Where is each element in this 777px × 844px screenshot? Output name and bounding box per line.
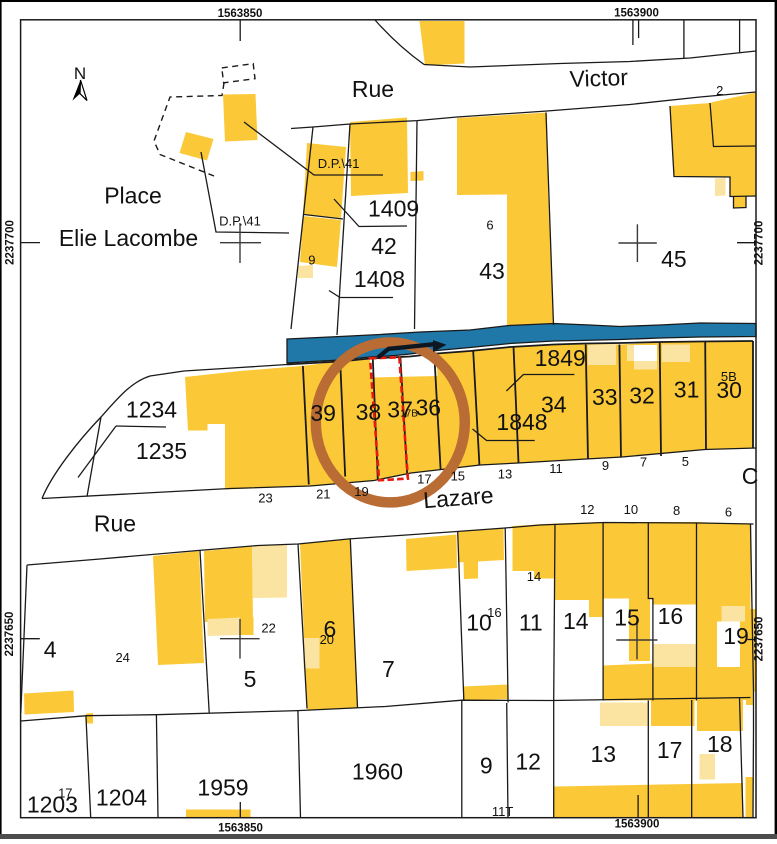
- svg-text:9: 9: [602, 458, 609, 473]
- svg-text:Place: Place: [104, 183, 162, 209]
- svg-text:1234: 1234: [126, 397, 177, 423]
- svg-text:11: 11: [519, 610, 543, 636]
- svg-text:2: 2: [716, 83, 723, 98]
- svg-text:16: 16: [487, 605, 501, 620]
- svg-text:9: 9: [480, 753, 493, 779]
- svg-text:36: 36: [416, 395, 442, 421]
- svg-text:45: 45: [661, 246, 687, 272]
- svg-text:7: 7: [382, 656, 395, 682]
- svg-text:24: 24: [115, 650, 129, 665]
- svg-text:32: 32: [629, 383, 655, 409]
- svg-text:21: 21: [316, 487, 330, 502]
- svg-text:7: 7: [640, 455, 647, 470]
- svg-text:Lazare: Lazare: [422, 482, 494, 513]
- svg-text:2237650: 2237650: [754, 617, 766, 662]
- svg-text:1563900: 1563900: [614, 8, 659, 20]
- svg-text:1563850: 1563850: [218, 8, 263, 20]
- svg-text:11T: 11T: [492, 804, 513, 819]
- svg-text:10: 10: [624, 502, 638, 517]
- svg-text:14: 14: [563, 608, 589, 634]
- svg-text:17: 17: [58, 786, 72, 801]
- svg-text:1204: 1204: [96, 785, 147, 811]
- svg-text:2237700: 2237700: [754, 221, 766, 266]
- svg-text:17B: 17B: [400, 409, 418, 420]
- svg-text:17: 17: [657, 737, 683, 763]
- svg-text:1409: 1409: [368, 196, 419, 222]
- svg-text:13: 13: [591, 741, 617, 767]
- svg-text:6: 6: [486, 218, 493, 233]
- svg-text:Rue: Rue: [352, 76, 394, 102]
- svg-text:15: 15: [451, 469, 465, 484]
- svg-text:39: 39: [310, 400, 336, 426]
- svg-text:1960: 1960: [352, 759, 403, 785]
- svg-text:18: 18: [707, 731, 733, 757]
- svg-text:11: 11: [549, 461, 563, 476]
- svg-text:C: C: [742, 463, 759, 489]
- svg-text:6: 6: [725, 505, 732, 520]
- svg-text:19: 19: [354, 484, 368, 499]
- svg-text:8: 8: [673, 503, 680, 518]
- svg-text:2237700: 2237700: [5, 220, 17, 265]
- svg-text:1959: 1959: [197, 775, 248, 801]
- svg-text:1563850: 1563850: [218, 823, 263, 835]
- svg-text:Victor: Victor: [569, 64, 629, 92]
- svg-text:33: 33: [592, 384, 618, 410]
- svg-text:N: N: [74, 64, 86, 83]
- svg-text:31: 31: [674, 377, 700, 403]
- svg-text:12: 12: [515, 749, 541, 775]
- svg-text:4: 4: [44, 637, 57, 663]
- svg-text:15: 15: [614, 605, 640, 631]
- svg-text:1408: 1408: [354, 266, 405, 292]
- svg-text:38: 38: [356, 399, 382, 425]
- svg-text:5: 5: [682, 454, 689, 469]
- svg-text:Rue: Rue: [94, 511, 136, 537]
- svg-text:43: 43: [479, 258, 505, 284]
- svg-text:22: 22: [261, 621, 275, 636]
- svg-text:12: 12: [580, 502, 594, 517]
- svg-text:D.P.\41: D.P.\41: [318, 156, 360, 171]
- svg-text:1848: 1848: [496, 409, 547, 435]
- svg-text:2237650: 2237650: [4, 612, 16, 657]
- svg-text:17: 17: [417, 472, 431, 487]
- svg-text:5B: 5B: [721, 369, 737, 384]
- svg-text:1235: 1235: [136, 438, 187, 464]
- svg-text:14: 14: [527, 569, 541, 584]
- svg-text:16: 16: [658, 603, 684, 629]
- svg-text:23: 23: [258, 491, 272, 506]
- svg-text:42: 42: [371, 233, 397, 259]
- svg-text:Elie Lacombe: Elie Lacombe: [59, 225, 198, 251]
- svg-text:1849: 1849: [535, 345, 586, 371]
- svg-text:19: 19: [723, 623, 749, 649]
- svg-text:13: 13: [498, 467, 512, 482]
- svg-text:5: 5: [244, 666, 257, 692]
- svg-text:1563900: 1563900: [615, 819, 660, 831]
- svg-text:20: 20: [320, 632, 334, 647]
- svg-text:9: 9: [308, 253, 315, 268]
- svg-text:D.P.\41: D.P.\41: [219, 214, 261, 229]
